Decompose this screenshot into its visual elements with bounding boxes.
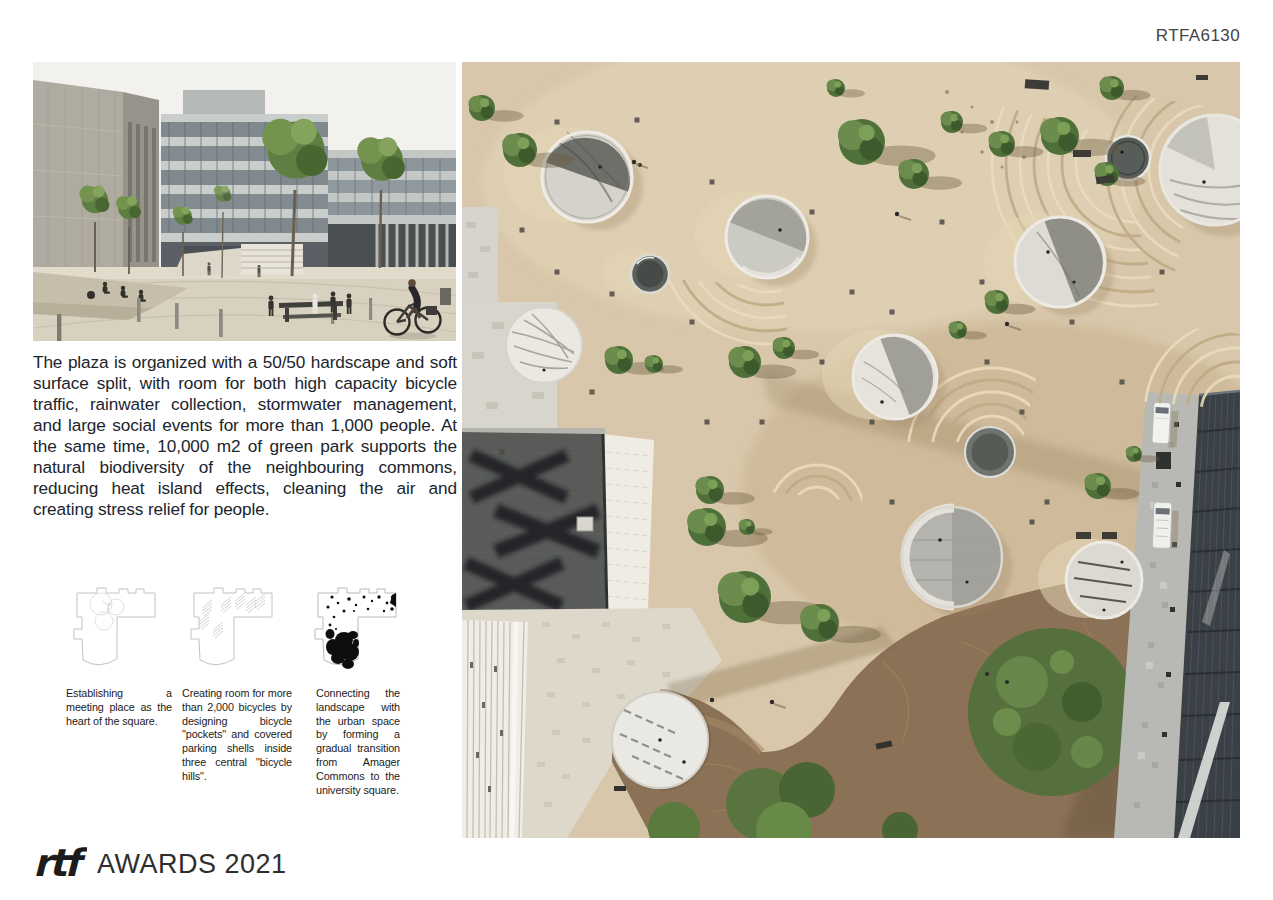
hill-top-d [506, 307, 582, 383]
diagram-bicycle-hills [177, 577, 293, 677]
hill-opening-h [853, 335, 937, 419]
hill-opening-k [965, 427, 1015, 477]
striped-facade-building [462, 620, 528, 838]
diagram-caption-landscape-connection: Connecting the landscape with the urban … [316, 687, 400, 798]
entry-code: RTFA6130 [1156, 26, 1240, 46]
hill-opening-c [726, 196, 808, 278]
hill-opening-a [542, 132, 632, 222]
hill-top-j [1066, 542, 1142, 618]
diagram-meeting-place [60, 577, 176, 677]
svg-text:rtf: rtf [33, 843, 87, 885]
diagram-landscape-connection [301, 577, 417, 677]
street-photo [33, 62, 456, 341]
large-tree-mass [968, 628, 1136, 796]
intro-paragraph: The plaza is organized with a 50/50 hard… [33, 352, 457, 520]
aerial-photo [462, 62, 1240, 838]
bicycle-parking-circle [612, 692, 708, 788]
hill-opening-b [631, 255, 669, 293]
hill-opening-i [902, 507, 1002, 607]
awards-year-text: AWARDS 2021 [97, 849, 287, 880]
rtf-awards-logo: rtf AWARDS 2021 [33, 843, 287, 885]
waste-bin [440, 288, 451, 305]
presentation-board: RTFA6130 [0, 0, 1273, 900]
diagram-caption-bicycle-hills: Creating room for more than 2,000 bicycl… [182, 687, 292, 784]
rtf-logo-mark: rtf [33, 843, 87, 885]
auditorium-building [462, 428, 654, 619]
hill-opening-g [1015, 217, 1105, 307]
diagram-caption-meeting-place: Establishing a meeting place as the hear… [66, 687, 172, 728]
